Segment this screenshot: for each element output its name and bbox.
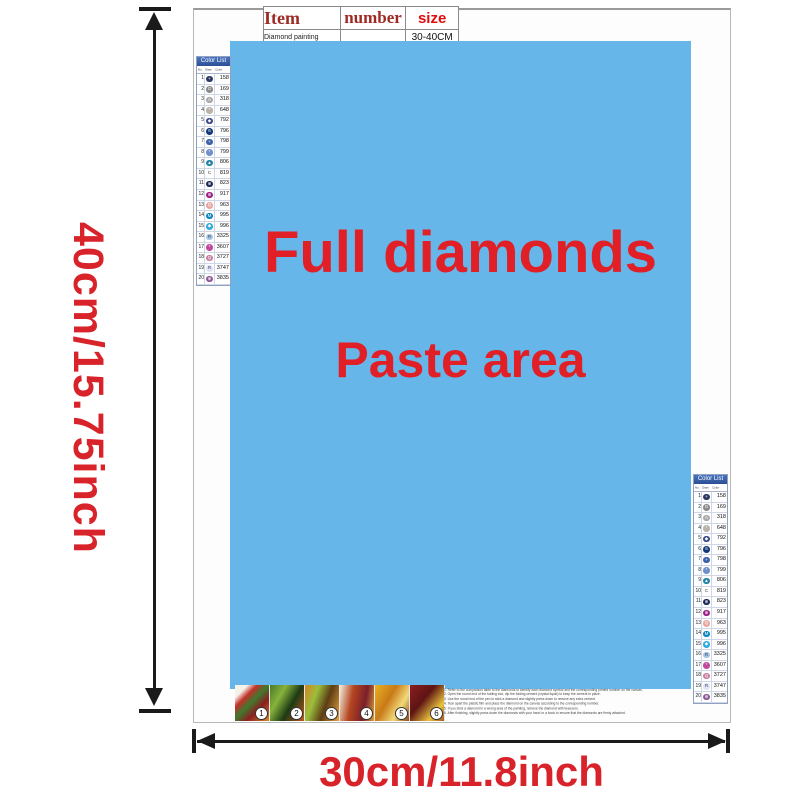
color-list-row: 5◆792 <box>197 116 230 127</box>
diamond-symbol-cell: ▲ <box>205 158 215 168</box>
dmc-color-code: 792 <box>215 116 230 126</box>
dmc-color-code: 798 <box>215 137 230 147</box>
step-photo: 4 <box>340 685 375 721</box>
color-row-number: 9 <box>694 576 702 586</box>
diamond-symbol-cell: ⊕ <box>205 190 215 200</box>
color-list-column-headers: No.DiamondColor <box>694 484 727 492</box>
diamond-symbol-icon: A <box>206 97 213 104</box>
spec-header-size: size <box>406 7 459 30</box>
color-list-column-label: No. <box>695 486 700 490</box>
dmc-color-code: 318 <box>215 95 230 105</box>
color-list-row: 20⊕3835 <box>197 274 230 285</box>
diamond-symbol-cell: ◆ <box>702 534 712 544</box>
step-number-badge: 6 <box>430 707 443 720</box>
spec-header-item: Item <box>264 7 341 30</box>
color-row-number: 11 <box>197 179 205 189</box>
diamond-symbol-cell: + <box>205 137 215 147</box>
dmc-color-code: 823 <box>215 179 230 189</box>
color-list-row: 2G169 <box>694 503 727 514</box>
dmc-color-code: 318 <box>712 513 727 523</box>
color-list-row: 66796 <box>694 545 727 556</box>
diamond-symbol-icon: G <box>703 504 710 511</box>
dmc-color-code: 3747 <box>712 682 727 692</box>
dmc-color-code: 996 <box>215 222 230 232</box>
diamond-symbol-icon: Q <box>206 255 213 262</box>
color-row-number: 20 <box>197 274 205 284</box>
width-dimension-label: 30cm/11.8inch <box>193 748 730 796</box>
color-row-number: 4 <box>197 106 205 116</box>
diamond-symbol-cell: * <box>205 243 215 253</box>
dmc-color-code: 796 <box>712 545 727 555</box>
diamond-symbol-icon: * <box>703 525 710 532</box>
color-list-title: Color List <box>694 475 727 484</box>
color-list-row: 7+798 <box>197 137 230 148</box>
diamond-symbol-icon: * <box>206 244 213 251</box>
diamond-symbol-icon: ◆ <box>703 641 710 648</box>
dmc-color-code: 3607 <box>712 661 727 671</box>
diamond-symbol-cell: + <box>702 492 712 502</box>
diamond-symbol-cell: ◆ <box>205 222 215 232</box>
dmc-color-code: 917 <box>712 608 727 618</box>
paste-area: Full diamonds Paste area <box>230 41 691 689</box>
vertical-arrow-line <box>153 24 156 692</box>
dmc-color-code: 799 <box>712 566 727 576</box>
step-number-badge: 1 <box>255 707 268 720</box>
dmc-color-code: 3607 <box>215 243 230 253</box>
paste-area-subtitle: Paste area <box>230 331 691 389</box>
diamond-symbol-cell: R <box>702 682 712 692</box>
dmc-color-code: 3835 <box>215 274 230 284</box>
color-row-number: 1 <box>197 74 205 84</box>
step-number-badge: 5 <box>395 707 408 720</box>
diamond-symbol-icon: 6 <box>206 128 213 135</box>
diamond-symbol-icon: * <box>703 567 710 574</box>
color-row-number: 6 <box>197 127 205 137</box>
diamond-symbol-icon: + <box>703 557 710 564</box>
diamond-symbol-icon: + <box>703 494 710 501</box>
color-list-row: 12⊕917 <box>694 608 727 619</box>
color-row-number: 19 <box>694 682 702 692</box>
dmc-color-code: 796 <box>215 127 230 137</box>
color-list-row: 3A318 <box>197 95 230 106</box>
color-list-row: 16R3325 <box>197 232 230 243</box>
dmc-color-code: 792 <box>712 534 727 544</box>
color-list-left: Color List No.DiamondColor 1+1582G1693A3… <box>196 56 231 286</box>
diamond-symbol-icon: C <box>206 170 213 177</box>
diamond-symbol-cell: M <box>702 629 712 639</box>
diamond-symbol-cell: ⊕ <box>702 597 712 607</box>
diamond-symbol-cell: Q <box>205 253 215 263</box>
dmc-color-code: 3727 <box>215 253 230 263</box>
dmc-color-code: 158 <box>712 492 727 502</box>
step-photo: 1 <box>235 685 270 721</box>
color-list-row: 18Q3727 <box>197 253 230 264</box>
diamond-symbol-icon: * <box>703 662 710 669</box>
diamond-symbol-icon: Q <box>206 202 213 209</box>
diamond-symbol-cell: * <box>205 106 215 116</box>
diamond-symbol-icon: ⊕ <box>206 192 213 199</box>
diamond-symbol-cell: 6 <box>205 127 215 137</box>
color-list-row: 1+158 <box>197 74 230 85</box>
color-list-column-label: Color <box>215 68 228 72</box>
step-number-badge: 4 <box>360 707 373 720</box>
color-row-number: 13 <box>197 201 205 211</box>
color-list-row: 9▲806 <box>197 158 230 169</box>
step-number-badge: 3 <box>325 707 338 720</box>
color-list-row: 17*3607 <box>197 243 230 254</box>
color-list-row: 9▲806 <box>694 576 727 587</box>
color-row-number: 19 <box>197 264 205 274</box>
diamond-symbol-icon: * <box>206 107 213 114</box>
color-list-row: 7+798 <box>694 555 727 566</box>
color-row-number: 3 <box>694 513 702 523</box>
dmc-color-code: 169 <box>712 503 727 513</box>
color-list-row: 10C819 <box>694 587 727 598</box>
diamond-symbol-icon: ◆ <box>206 118 213 125</box>
vertical-arrow-top-cap <box>139 7 171 11</box>
color-list-column-label: Diamond <box>702 486 709 490</box>
diamond-symbol-cell: Q <box>702 619 712 629</box>
color-list-row: 3A318 <box>694 513 727 524</box>
diamond-symbol-cell: 6 <box>702 545 712 555</box>
diamond-symbol-icon: M <box>206 213 213 220</box>
dmc-color-code: 158 <box>215 74 230 84</box>
color-list-row: 11⊕823 <box>197 179 230 190</box>
color-row-number: 15 <box>694 640 702 650</box>
height-dimension-label: 40cm/15.75inch <box>63 222 112 554</box>
color-list-row: 14M995 <box>694 629 727 640</box>
instructions-text: 1. Refer to the comparison table to the … <box>444 688 681 716</box>
color-list-row: 2G169 <box>197 85 230 96</box>
color-row-number: 7 <box>694 555 702 565</box>
diamond-symbol-icon: ▲ <box>206 160 213 167</box>
diamond-symbol-cell: R <box>205 264 215 274</box>
diamond-symbol-cell: ◆ <box>205 116 215 126</box>
color-row-number: 7 <box>197 137 205 147</box>
diamond-symbol-cell: + <box>702 555 712 565</box>
color-row-number: 13 <box>694 619 702 629</box>
dmc-color-code: 996 <box>712 640 727 650</box>
diamond-symbol-cell: R <box>205 232 215 242</box>
color-row-number: 10 <box>197 169 205 179</box>
color-list-row: 4*648 <box>197 106 230 117</box>
color-row-number: 17 <box>197 243 205 253</box>
diamond-symbol-icon: A <box>703 515 710 522</box>
diamond-symbol-icon: ◆ <box>703 536 710 543</box>
diamond-symbol-cell: A <box>702 513 712 523</box>
diamond-symbol-icon: ▲ <box>703 578 710 585</box>
arrow-right-icon <box>708 733 726 749</box>
dmc-color-code: 169 <box>215 85 230 95</box>
diamond-symbol-cell: Q <box>205 201 215 211</box>
diamond-symbol-icon: ⊕ <box>703 610 710 617</box>
step-photo: 3 <box>305 685 340 721</box>
diamond-symbol-cell: G <box>205 85 215 95</box>
color-list-row: 17*3607 <box>694 661 727 672</box>
diamond-symbol-icon: + <box>206 139 213 146</box>
dmc-color-code: 3835 <box>712 692 727 702</box>
color-row-number: 14 <box>694 629 702 639</box>
spec-table-header-row: Item number size <box>264 7 459 30</box>
color-row-number: 12 <box>694 608 702 618</box>
dmc-color-code: 648 <box>712 524 727 534</box>
diamond-symbol-cell: C <box>205 169 215 179</box>
diamond-symbol-cell: ◆ <box>702 640 712 650</box>
color-row-number: 10 <box>694 587 702 597</box>
dmc-color-code: 995 <box>215 211 230 221</box>
color-row-number: 6 <box>694 545 702 555</box>
diamond-symbol-icon: G <box>206 86 213 93</box>
dmc-color-code: 806 <box>215 158 230 168</box>
diamond-symbol-cell: M <box>205 211 215 221</box>
dmc-color-code: 823 <box>712 597 727 607</box>
diamond-symbol-icon: ◆ <box>206 223 213 230</box>
color-list-title: Color List <box>197 57 230 66</box>
color-list-row: 8*799 <box>197 148 230 159</box>
color-row-number: 16 <box>197 232 205 242</box>
diamond-symbol-icon: C <box>703 588 710 595</box>
diamond-symbol-icon: 6 <box>703 546 710 553</box>
diamond-symbol-icon: ⊕ <box>703 599 710 606</box>
color-row-number: 18 <box>197 253 205 263</box>
color-list-rows: 1+1582G1693A3184*6485◆792667967+7988*799… <box>694 492 727 703</box>
color-list-row: 12⊕917 <box>197 190 230 201</box>
vertical-arrow-bottom-cap <box>139 709 171 713</box>
diamond-symbol-cell: * <box>702 524 712 534</box>
color-row-number: 11 <box>694 597 702 607</box>
diamond-symbol-icon: R <box>703 652 710 659</box>
color-row-number: 9 <box>197 158 205 168</box>
dmc-color-code: 963 <box>712 619 727 629</box>
color-list-row: 11⊕823 <box>694 597 727 608</box>
diamond-symbol-cell: Q <box>702 671 712 681</box>
color-list-right: Color List No.DiamondColor 1+1582G1693A3… <box>693 474 728 704</box>
diamond-symbol-icon: * <box>206 149 213 156</box>
diamond-symbol-cell: G <box>702 503 712 513</box>
color-row-number: 5 <box>197 116 205 126</box>
color-row-number: 20 <box>694 692 702 702</box>
color-list-row: 15◆996 <box>197 222 230 233</box>
diamond-symbol-icon: Q <box>703 673 710 680</box>
color-row-number: 16 <box>694 650 702 660</box>
step-photo: 6 <box>410 685 445 721</box>
diamond-symbol-cell: R <box>702 650 712 660</box>
diamond-symbol-cell: * <box>702 661 712 671</box>
diamond-symbol-cell: A <box>205 95 215 105</box>
step-photo: 2 <box>270 685 305 721</box>
diamond-symbol-icon: R <box>206 265 213 272</box>
color-list-row: 18Q3727 <box>694 671 727 682</box>
instructions-block: 1. Refer to the comparison table to the … <box>444 688 681 720</box>
step-photo: 5 <box>375 685 410 721</box>
color-list-row: 8*799 <box>694 566 727 577</box>
diamond-symbol-icon: R <box>703 683 710 690</box>
horizontal-arrow-line <box>197 740 725 743</box>
diamond-symbol-cell: + <box>205 74 215 84</box>
step-number-badge: 2 <box>290 707 303 720</box>
dmc-color-code: 819 <box>712 587 727 597</box>
diamond-symbol-cell: ⊕ <box>702 692 712 702</box>
dmc-color-code: 798 <box>712 555 727 565</box>
diamond-symbol-icon: ⊕ <box>206 181 213 188</box>
diamond-symbol-icon: ⊕ <box>206 276 213 283</box>
dmc-color-code: 917 <box>215 190 230 200</box>
diamond-symbol-cell: ⊕ <box>702 608 712 618</box>
diamond-symbol-icon: Q <box>703 620 710 627</box>
paste-area-title: Full diamonds <box>230 219 691 286</box>
step-photo-strip: 123456 <box>235 685 445 721</box>
color-list-column-headers: No.DiamondColor <box>197 66 230 74</box>
color-row-number: 3 <box>197 95 205 105</box>
color-list-row: 4*648 <box>694 524 727 535</box>
color-list-row: 20⊕3835 <box>694 692 727 703</box>
color-list-row: 13Q963 <box>694 619 727 630</box>
diamond-symbol-cell: ⊕ <box>205 179 215 189</box>
diamond-symbol-cell: * <box>702 566 712 576</box>
color-list-row: 66796 <box>197 127 230 138</box>
color-list-row: 19R3747 <box>197 264 230 275</box>
color-list-row: 10C819 <box>197 169 230 180</box>
dmc-color-code: 806 <box>712 576 727 586</box>
dmc-color-code: 3325 <box>712 650 727 660</box>
diamond-symbol-cell: ▲ <box>702 576 712 586</box>
color-list-row: 16R3325 <box>694 650 727 661</box>
canvas-page: Item number size Diamond painting 30-40C… <box>193 8 731 723</box>
diamond-symbol-icon: ⊕ <box>703 694 710 701</box>
dmc-color-code: 3747 <box>215 264 230 274</box>
dmc-color-code: 3727 <box>712 671 727 681</box>
color-row-number: 8 <box>197 148 205 158</box>
dmc-color-code: 3325 <box>215 232 230 242</box>
dmc-color-code: 995 <box>712 629 727 639</box>
color-list-column-label: Diamond <box>205 68 212 72</box>
color-list-rows: 1+1582G1693A3184*6485◆792667967+7988*799… <box>197 74 230 285</box>
dmc-color-code: 963 <box>215 201 230 211</box>
color-row-number: 2 <box>694 503 702 513</box>
color-row-number: 8 <box>694 566 702 576</box>
color-row-number: 14 <box>197 211 205 221</box>
diamond-symbol-icon: M <box>703 631 710 638</box>
color-row-number: 12 <box>197 190 205 200</box>
dmc-color-code: 648 <box>215 106 230 116</box>
color-list-row: 19R3747 <box>694 682 727 693</box>
color-list-row: 5◆792 <box>694 534 727 545</box>
diamond-symbol-cell: ⊕ <box>205 274 215 284</box>
color-row-number: 15 <box>197 222 205 232</box>
color-list-row: 1+158 <box>694 492 727 503</box>
color-list-column-label: Color <box>712 486 725 490</box>
color-row-number: 1 <box>694 492 702 502</box>
dmc-color-code: 819 <box>215 169 230 179</box>
color-list-row: 13Q963 <box>197 201 230 212</box>
instruction-line: 6. After finishing, slightly press down … <box>444 711 681 716</box>
diamond-symbol-cell: C <box>702 587 712 597</box>
arrow-down-icon <box>145 688 163 706</box>
color-row-number: 17 <box>694 661 702 671</box>
color-list-row: 15◆996 <box>694 640 727 651</box>
color-row-number: 4 <box>694 524 702 534</box>
color-list-column-label: No. <box>198 68 203 72</box>
diamond-symbol-icon: + <box>206 76 213 83</box>
color-row-number: 5 <box>694 534 702 544</box>
diamond-symbol-cell: * <box>205 148 215 158</box>
spec-table: Item number size Diamond painting 30-40C… <box>263 6 459 45</box>
color-list-row: 14M995 <box>197 211 230 222</box>
spec-header-number: number <box>340 7 406 30</box>
diamond-symbol-icon: R <box>206 234 213 241</box>
color-row-number: 2 <box>197 85 205 95</box>
color-row-number: 18 <box>694 671 702 681</box>
dmc-color-code: 799 <box>215 148 230 158</box>
